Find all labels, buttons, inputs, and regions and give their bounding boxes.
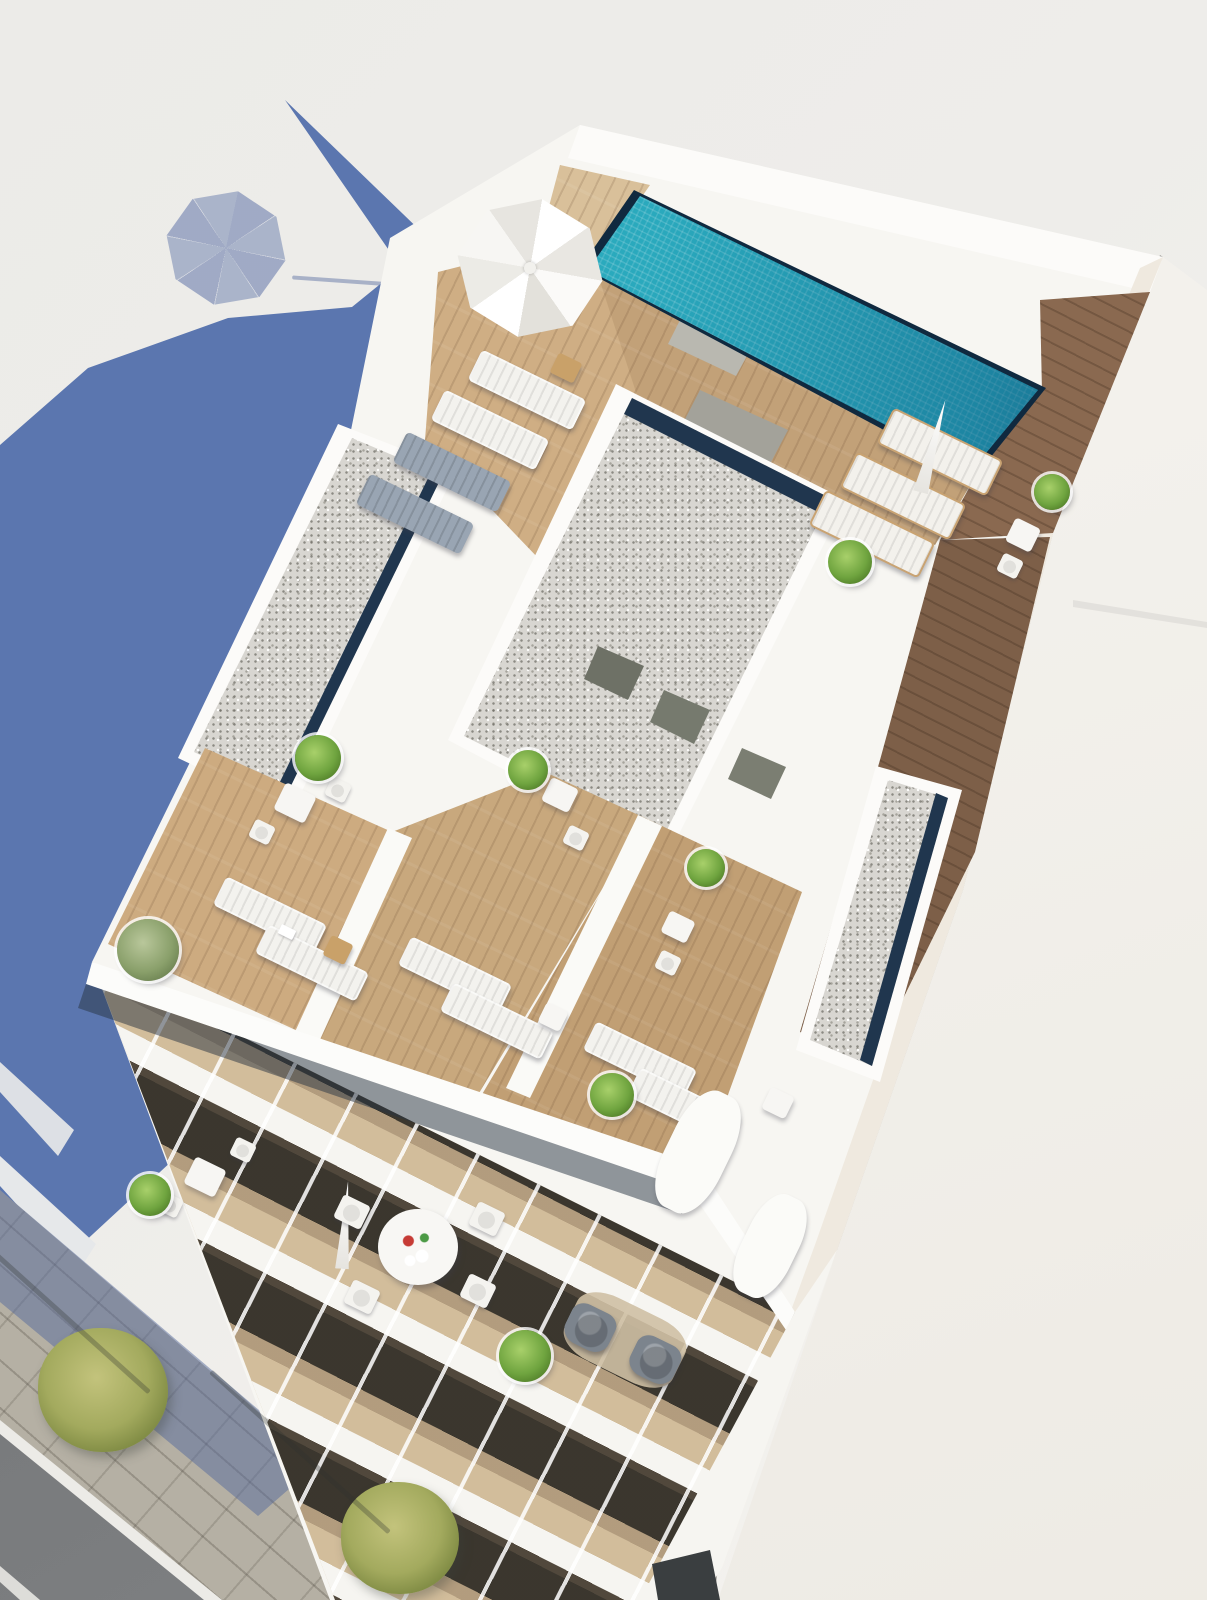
potted-plant (508, 750, 548, 790)
balcony-table (183, 1156, 227, 1198)
bistro-chair (562, 824, 591, 852)
bistro-table (541, 777, 579, 814)
open-parasol (438, 179, 622, 356)
potted-plant (1034, 474, 1070, 510)
olive-shrub (117, 919, 179, 981)
potted-plant (129, 1174, 171, 1216)
wood-side-table (549, 352, 582, 383)
deck-side-table (761, 1087, 795, 1120)
potted-plant (687, 849, 725, 887)
potted-plant (828, 540, 872, 584)
dining-chair (459, 1273, 497, 1310)
bistro-chair (248, 818, 277, 846)
dining-chair (333, 1194, 371, 1231)
bistro-table (660, 910, 696, 944)
round-dining-table (378, 1209, 458, 1285)
street-tree (341, 1482, 459, 1594)
render-canvas (0, 0, 1207, 1600)
potted-plant (499, 1330, 551, 1382)
balcony-chair (229, 1136, 258, 1164)
bistro-chair (654, 949, 683, 977)
tree-shadow (209, 1370, 391, 1534)
dining-chair (343, 1279, 381, 1316)
bistro-chair (996, 552, 1025, 580)
balcony-divider-wall (722, 1186, 818, 1307)
bistro-table (273, 782, 317, 824)
bistro-table (1005, 517, 1042, 553)
bistro-chair (324, 776, 353, 804)
potted-plant (590, 1073, 634, 1117)
potted-plant (295, 735, 341, 781)
dining-chair (468, 1201, 506, 1238)
furniture-layer (0, 0, 1207, 1600)
